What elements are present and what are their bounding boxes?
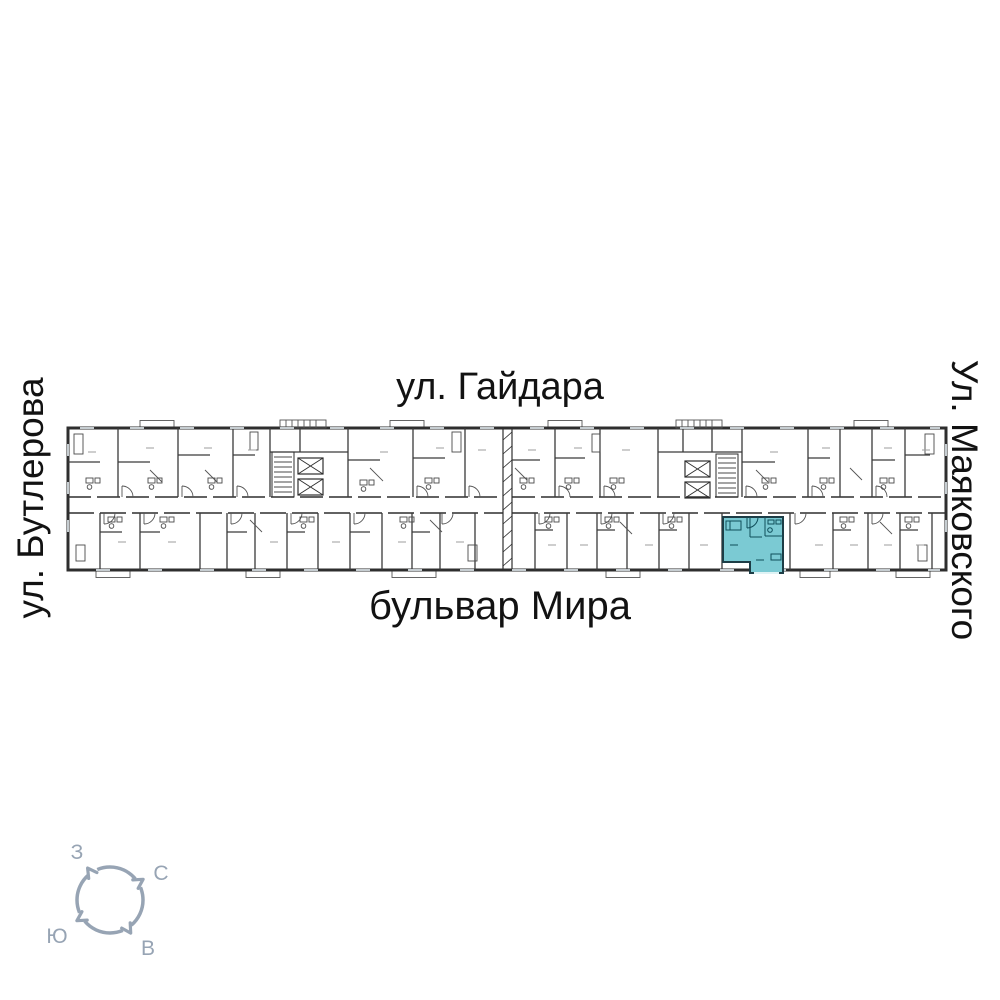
corridor: [68, 497, 946, 513]
highlighted-apartment[interactable]: [723, 517, 783, 573]
stair-core-left: [270, 420, 348, 497]
elevator-icon: [685, 482, 710, 498]
expansion-joint: [503, 428, 512, 570]
stair-core-right: [658, 420, 742, 498]
compass: З С Ю В: [46, 841, 168, 960]
partitions-lower: [100, 513, 932, 570]
elevator-icon: [685, 461, 710, 477]
compass-arrow-west: [88, 868, 97, 878]
compass-circle: [77, 867, 143, 933]
compass-label-south: Ю: [46, 925, 67, 948]
floorplan-svg: З С Ю В: [0, 0, 1000, 1000]
room-dividers: [68, 455, 930, 532]
balconies: [96, 421, 930, 578]
compass-label-north: С: [153, 862, 168, 885]
elevator-icon: [298, 479, 323, 495]
compass-label-east: В: [141, 937, 155, 960]
doors-upper: [122, 486, 887, 497]
compass-label-west: З: [71, 841, 84, 864]
elevator-icon: [298, 458, 323, 474]
